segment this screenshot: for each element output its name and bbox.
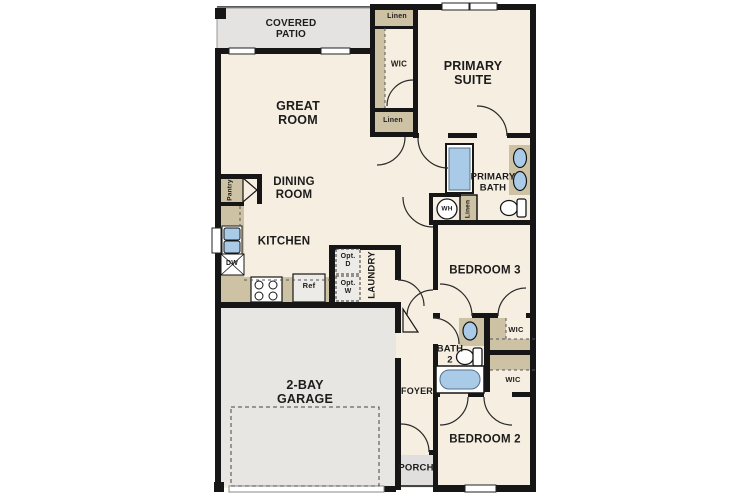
label-covered-patio: COVERED PATIO (255, 18, 327, 40)
patio-post (215, 8, 226, 19)
wall-linen-mid-bottom (370, 132, 418, 137)
bathtub (440, 370, 480, 389)
wall-kitchen-garage (215, 302, 401, 308)
wic3-shelf-left (490, 318, 506, 342)
wall-bed3-bottom-c (526, 313, 536, 318)
kitchen-sink-2 (224, 241, 240, 253)
window-patio-2 (321, 48, 350, 54)
wall-bath-bed3 (429, 220, 536, 225)
window-suite-1 (442, 3, 469, 10)
label-wic-bedroom2: WIC (505, 376, 520, 384)
window-kitchen (212, 228, 221, 253)
label-pantry: Pantry (226, 179, 233, 200)
kitchen-sink-1 (224, 228, 240, 240)
wall-laundry-left (329, 245, 335, 307)
wall-porch-top-b (429, 450, 435, 455)
wall-wh-left (429, 193, 433, 224)
label-primary-bath: PRIMARY BATH (464, 172, 522, 193)
wall-suite-bottom-b (448, 133, 477, 138)
floor-plan: COVERED PATIO GREAT ROOM DINING ROOM KIT… (0, 0, 750, 500)
wall-pantry-right (257, 174, 262, 204)
wall-hall-left-b (395, 306, 401, 333)
label-primary-suite: PRIMARY SUITE (438, 59, 508, 87)
garage-door-opening (229, 486, 384, 492)
wall-bed3-left (433, 224, 438, 290)
label-wic-bedroom3: WIC (508, 326, 523, 334)
bath2-sink (463, 322, 477, 340)
wall-suite-bottom-a (413, 133, 419, 138)
label-optional-washer: Opt. W (338, 280, 358, 296)
window-suite-2 (470, 3, 497, 10)
wall-wic-left (370, 4, 375, 136)
wic-primary-shelf (375, 26, 385, 108)
label-bath-2: BATH 2 (434, 344, 466, 365)
wall-right-exterior (530, 4, 536, 492)
label-dishwasher: DW (226, 260, 238, 268)
label-bedroom-2: BEDROOM 2 (449, 434, 520, 447)
wic3-shelf-bottom (490, 339, 536, 351)
label-linen-top: Linen (387, 13, 407, 21)
label-wic-primary: WIC (391, 61, 407, 70)
label-linen-bath: Linen (464, 200, 471, 218)
wall-suite-left (413, 4, 418, 138)
label-bedroom-3: BEDROOM 3 (449, 265, 520, 278)
window-patio-1 (229, 48, 255, 54)
wall-hall-left-a (395, 250, 401, 280)
label-garage: 2-BAY GARAGE (273, 378, 337, 406)
wall-linen-mid-top (370, 108, 418, 112)
wall-pantry-bottom (217, 202, 244, 206)
label-foyer: FOYER (401, 386, 433, 396)
label-optional-dryer: Opt. D (338, 253, 358, 269)
label-dining-room: DINING ROOM (266, 176, 322, 202)
vanity-sink-1 (514, 149, 527, 168)
window-bedroom2 (465, 485, 496, 492)
primary-toilet-tank (517, 199, 526, 217)
wall-porch-top-a (395, 450, 401, 455)
label-water-heater: WH (441, 205, 452, 212)
wall-wic-divider (487, 350, 536, 355)
label-great-room: GREAT ROOM (266, 99, 330, 127)
primary-toilet-bowl (501, 201, 518, 216)
wic2-shelf-top (490, 355, 536, 370)
label-laundry: LAUNDRY (368, 251, 379, 299)
wall-pantry-top (217, 174, 262, 179)
porch-edge (401, 485, 433, 487)
label-refrigerator: Ref (303, 282, 316, 290)
wall-linen-top-bottom (374, 26, 414, 29)
label-porch: PORCH (398, 464, 433, 475)
label-linen-mid: Linen (383, 117, 403, 125)
garage-post (214, 482, 224, 492)
bath2-toilet-tank (473, 348, 482, 366)
label-kitchen: KITCHEN (258, 236, 311, 249)
wall-suite-bottom-c (507, 133, 536, 138)
wall-left-exterior (215, 48, 221, 492)
wall-garage-door-right (383, 486, 396, 492)
wall-bed3-bottom-a (433, 313, 440, 318)
wall-bed2-top-c (512, 392, 536, 397)
